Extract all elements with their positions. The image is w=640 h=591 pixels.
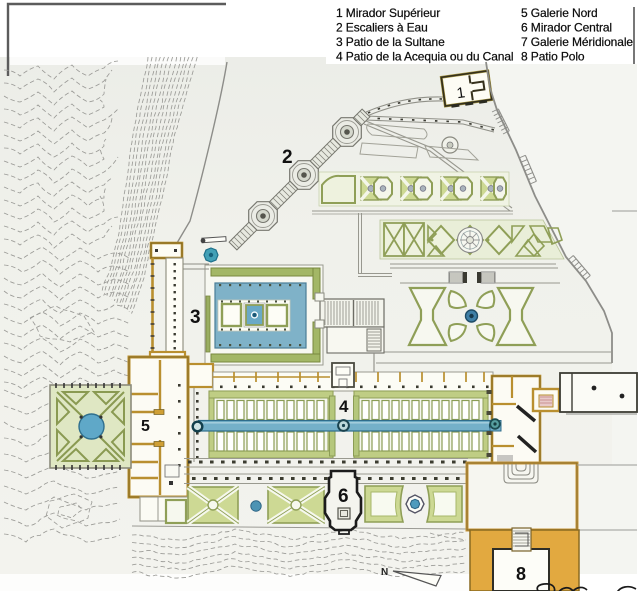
svg-text:4: 4 bbox=[339, 397, 349, 416]
svg-text:5: 5 bbox=[141, 418, 150, 435]
svg-text:6: 6 bbox=[338, 486, 349, 507]
svg-text:8 Patio Polo: 8 Patio Polo bbox=[521, 50, 585, 64]
svg-text:N: N bbox=[381, 567, 388, 578]
svg-text:5 Galerie Nord: 5 Galerie Nord bbox=[521, 6, 598, 20]
svg-text:1 Mirador Supérieur: 1 Mirador Supérieur bbox=[336, 6, 440, 20]
svg-text:3: 3 bbox=[190, 307, 201, 328]
svg-text:4 Patio de la Acequia ou du Ca: 4 Patio de la Acequia ou du Canal bbox=[336, 50, 514, 64]
svg-text:8: 8 bbox=[516, 564, 526, 584]
svg-text:6 Mirador Central: 6 Mirador Central bbox=[521, 21, 612, 35]
svg-text:7 Galerie Méridionale: 7 Galerie Méridionale bbox=[521, 35, 633, 49]
svg-text:3 Patio de la Sultane: 3 Patio de la Sultane bbox=[336, 35, 445, 49]
svg-text:2 Escaliers à Eau: 2 Escaliers à Eau bbox=[336, 21, 428, 35]
svg-text:2: 2 bbox=[282, 147, 293, 168]
